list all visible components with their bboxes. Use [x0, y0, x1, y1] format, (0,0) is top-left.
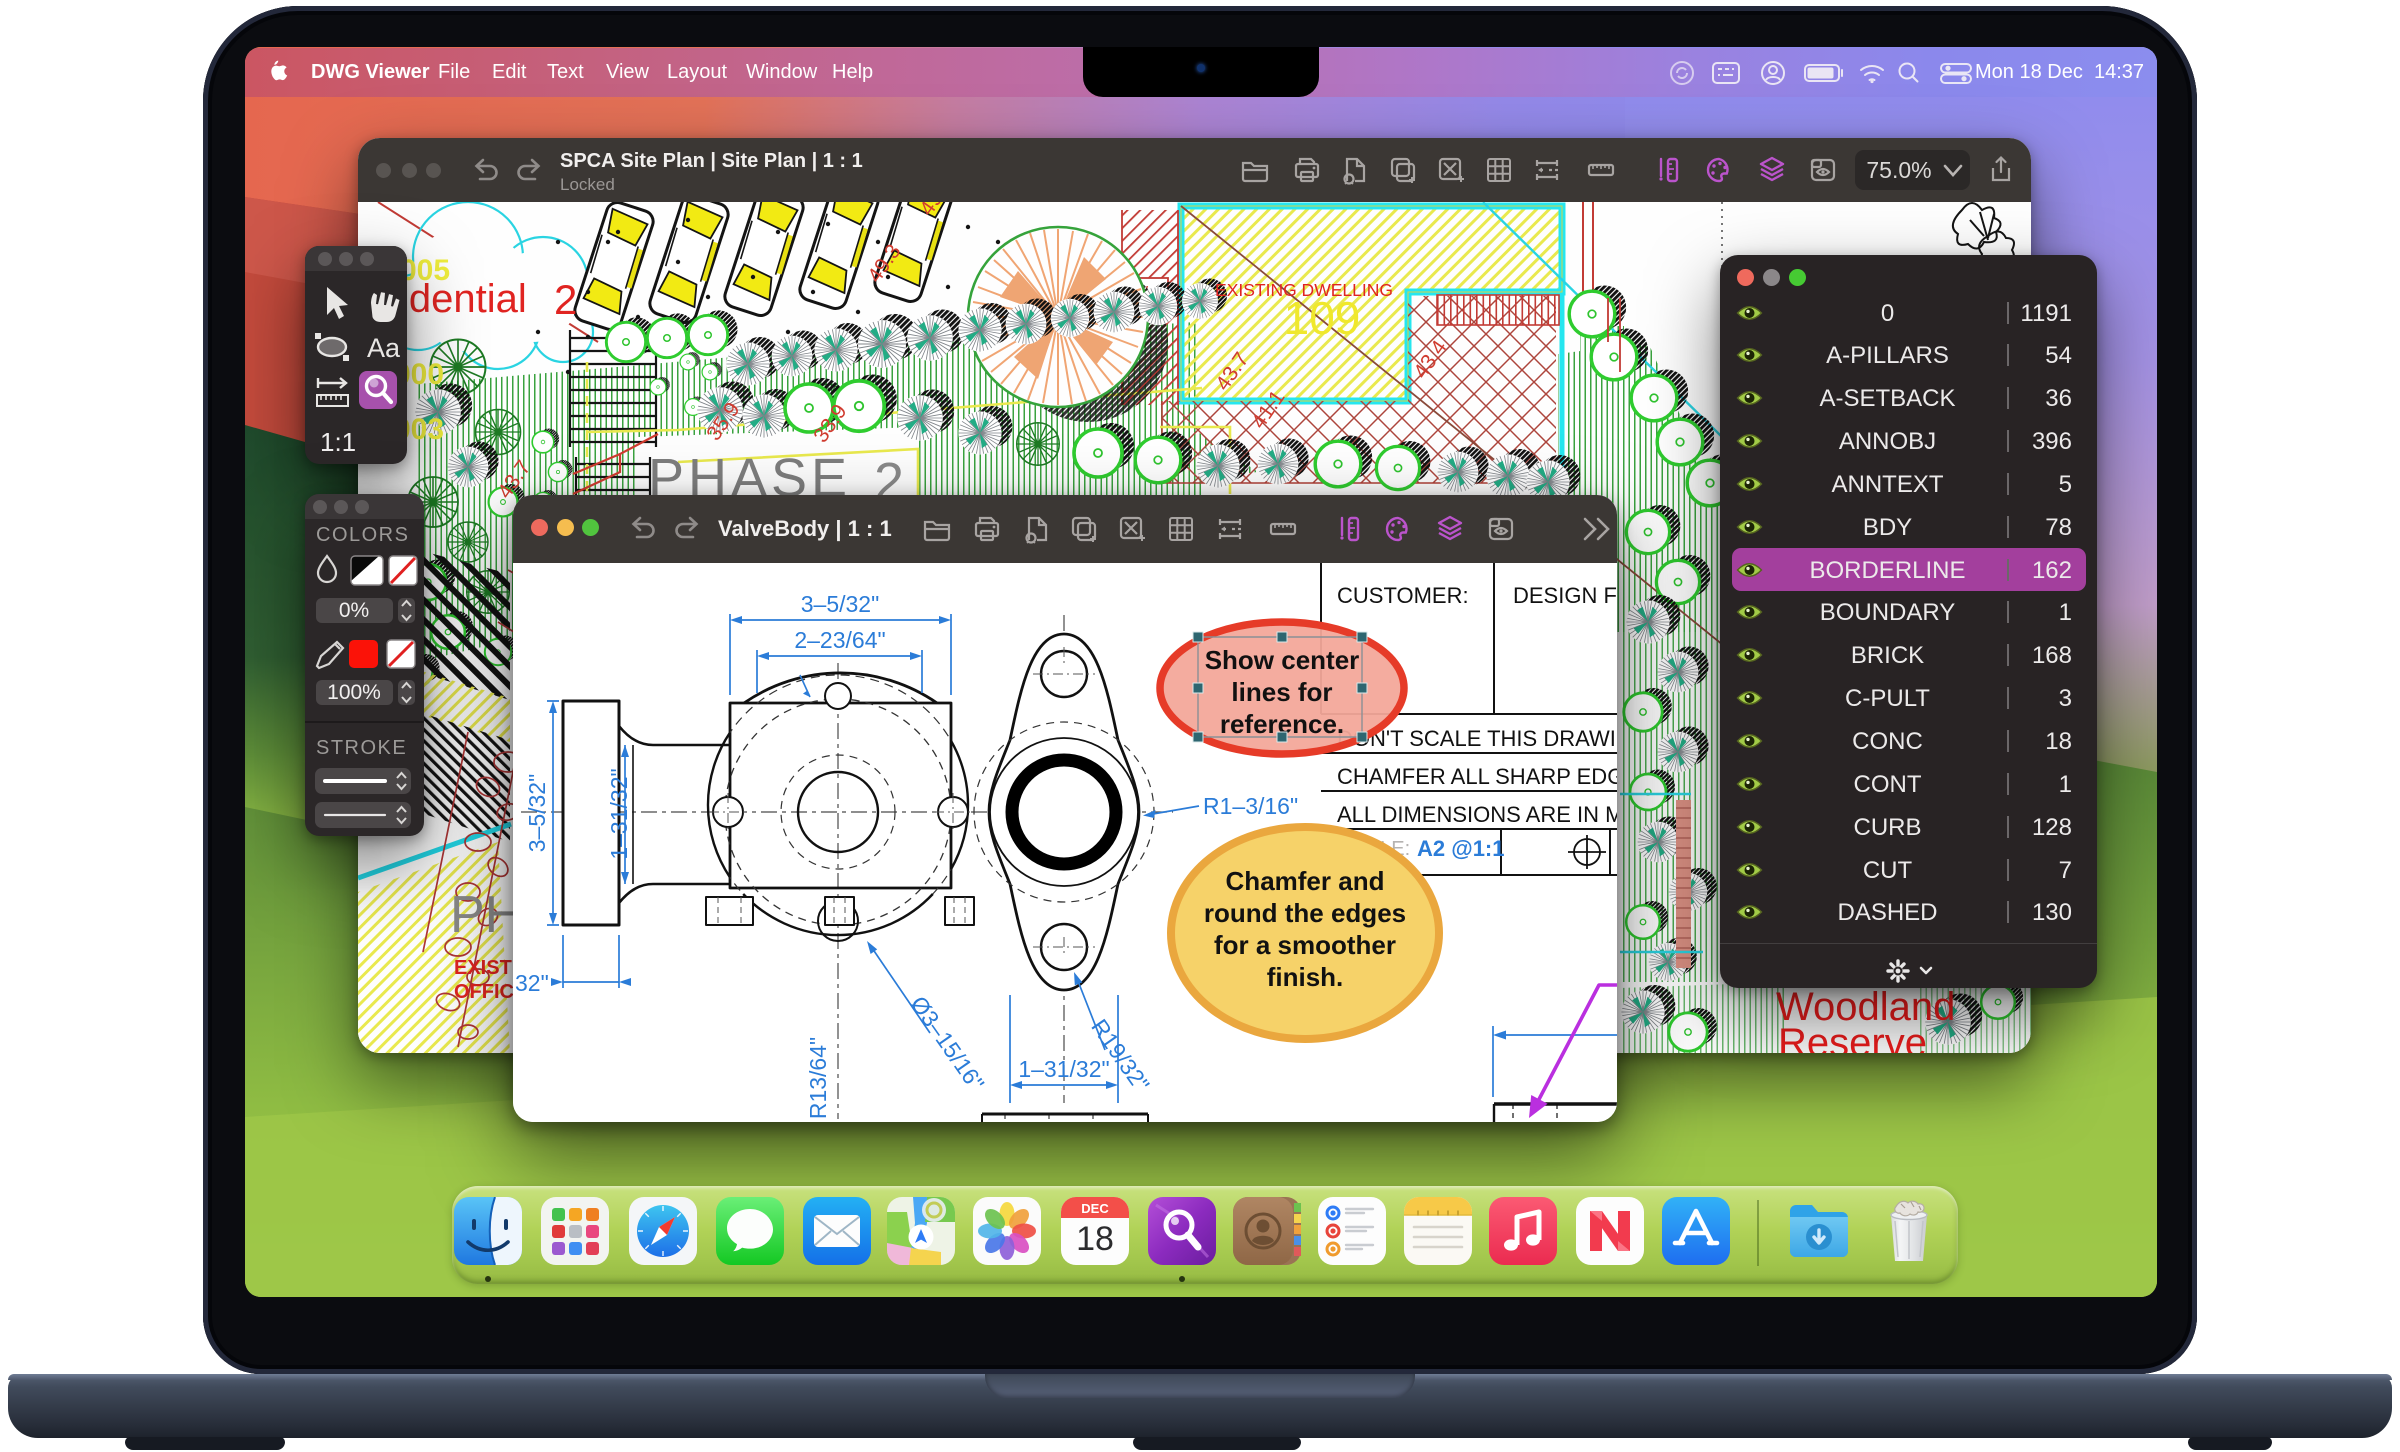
svg-text:round the edges: round the edges	[1204, 898, 1406, 928]
svg-text:0%: 0%	[339, 599, 369, 622]
svg-text:18: 18	[1076, 1220, 1114, 1258]
svg-text:32": 32"	[515, 970, 549, 996]
svg-text:Chamfer and: Chamfer and	[1226, 866, 1385, 896]
svg-text:1–31/32": 1–31/32"	[1018, 1056, 1109, 1082]
svg-text:lines for: lines for	[1231, 677, 1332, 707]
svg-text:Show center: Show center	[1205, 645, 1360, 675]
svg-text:R13/64": R13/64"	[805, 1037, 831, 1119]
svg-text:A2 @1:1: A2 @1:1	[1417, 836, 1504, 861]
svg-text:DEC: DEC	[1081, 1201, 1109, 1216]
svg-text:STROKE: STROKE	[316, 737, 407, 759]
svg-text:PH: PH	[450, 886, 522, 944]
svg-text:for a smoother: for a smoother	[1214, 930, 1396, 960]
svg-text:Aa: Aa	[367, 333, 401, 363]
svg-text:CHAMFER ALL SHARP EDGES: CHAMFER ALL SHARP EDGES	[1337, 764, 1617, 789]
svg-text:1–31/32": 1–31/32"	[606, 768, 632, 859]
svg-text:109: 109	[1284, 292, 1361, 344]
svg-text:3–5/32": 3–5/32"	[524, 774, 550, 853]
svg-text:100%: 100%	[327, 681, 381, 704]
svg-text:finish.: finish.	[1267, 962, 1344, 992]
svg-text:DESIGN FIRM: DESIGN FIRM	[1513, 583, 1617, 608]
svg-text:2–23/64": 2–23/64"	[794, 627, 885, 653]
svg-text:EXISTI: EXISTI	[454, 957, 517, 979]
svg-text:ALL DIMENSIONS ARE IN MM: ALL DIMENSIONS ARE IN MM	[1337, 802, 1617, 827]
svg-text:3–5/32": 3–5/32"	[801, 591, 880, 617]
svg-text:CUSTOMER:: CUSTOMER:	[1337, 583, 1469, 608]
svg-text:Reserve: Reserve	[1778, 1021, 1927, 1053]
svg-text:75.0%: 75.0%	[1866, 157, 1931, 183]
svg-text:Ø3–15/16": Ø3–15/16"	[906, 991, 990, 1095]
svg-text:1:1: 1:1	[320, 427, 356, 457]
svg-text:R1–3/16": R1–3/16"	[1203, 793, 1298, 819]
svg-text:2: 2	[554, 276, 577, 323]
